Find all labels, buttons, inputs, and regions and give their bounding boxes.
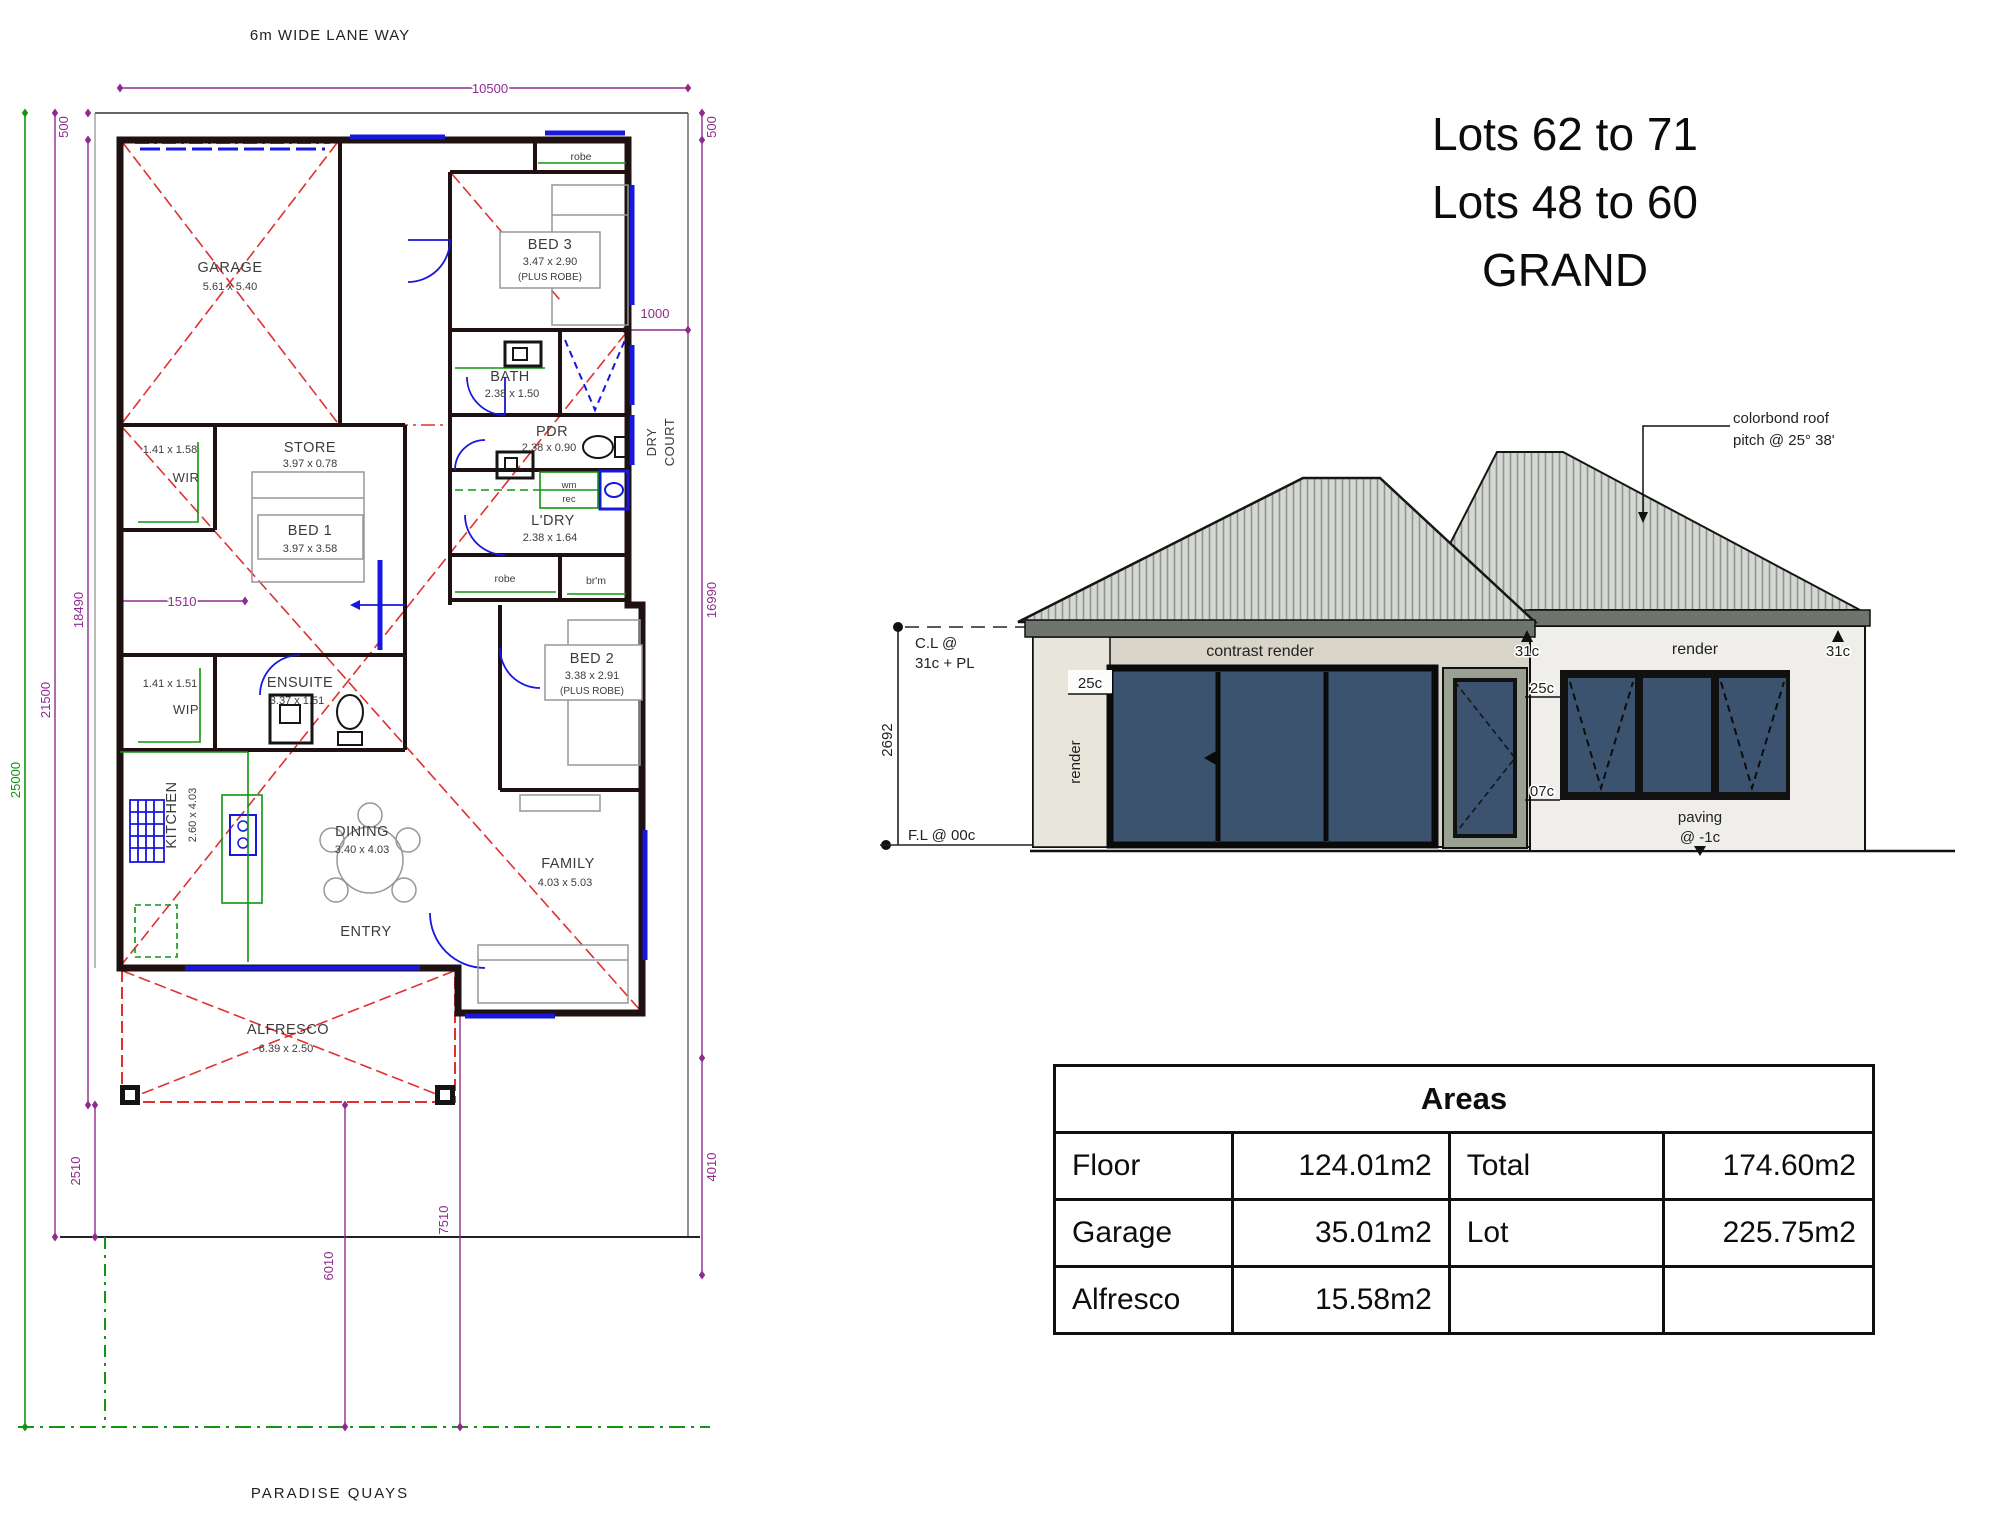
room-alfresco-size: 6.39 x 2.50: [259, 1043, 313, 1055]
lane-label: 6m WIDE LANE WAY: [250, 27, 410, 44]
room-dining: DINING: [335, 824, 389, 840]
right-window: [1560, 670, 1790, 800]
room-pdr: PDR: [536, 424, 568, 440]
marker-31-right: 31c: [1826, 643, 1851, 660]
room-store: STORE: [284, 440, 336, 456]
dim-depth3: 18490: [71, 592, 86, 628]
ceiling-label-1: C.L @: [915, 635, 957, 652]
room-alfresco: ALFRESCO: [247, 1022, 329, 1038]
roof-note-line1: colorbond roof: [1733, 410, 1830, 427]
room-pdr-size: 2.38 x 0.90: [522, 442, 576, 454]
roof-note-line2: pitch @ 25° 38': [1733, 432, 1835, 449]
dim-front-setback: 500: [56, 116, 71, 138]
page: { "title": { "line1": "Lots 62 to 71", "…: [0, 0, 2000, 1517]
label-dry-court-1: DRY: [644, 428, 659, 457]
label-rec: rec: [562, 494, 575, 505]
label-wm: wm: [561, 480, 577, 491]
room-bed2-note: (PLUS ROBE): [560, 686, 624, 697]
garage-door: [1110, 668, 1435, 845]
area-total-label: Total: [1449, 1133, 1663, 1200]
room-bed3-size: 3.47 x 2.90: [523, 256, 577, 268]
elevation-drawing: colorbond roof pitch @ 25° 38' C.L @ 31c…: [870, 390, 1980, 920]
marker-25-right: 25c: [1530, 680, 1555, 697]
ceiling-label-2: 31c + PL: [915, 655, 975, 672]
areas-table: Areas Floor 124.01m2 Total 174.60m2 Gara…: [1053, 1064, 1875, 1335]
areas-table-title: Areas: [1055, 1066, 1874, 1133]
area-floor-label: Floor: [1055, 1133, 1233, 1200]
area-empty-value: [1663, 1267, 1874, 1334]
table-row: Garage 35.01m2 Lot 225.75m2: [1055, 1200, 1874, 1267]
room-wir: WIR: [173, 470, 200, 485]
roof: [1018, 452, 1870, 637]
label-dry-court-2: COURT: [662, 418, 677, 466]
height-dim: 2692: [879, 723, 896, 756]
paving-label-2: @ -1c: [1680, 829, 1721, 846]
room-bath: BATH: [490, 369, 530, 385]
room-wir-size: 1.41 x 1.58: [143, 444, 197, 456]
room-ldry: L'DRY: [531, 513, 575, 529]
room-kitchen: KITCHEN: [164, 781, 180, 848]
room-store-size: 3.97 x 0.78: [283, 458, 337, 470]
area-lot-value: 225.75m2: [1663, 1200, 1874, 1267]
title-line-1: Lots 62 to 71: [1245, 100, 1885, 168]
roof-annotation: colorbond roof pitch @ 25° 38': [1638, 410, 1835, 523]
area-lot-label: Lot: [1449, 1200, 1663, 1267]
title-block: Lots 62 to 71 Lots 48 to 60 GRAND: [1245, 100, 1885, 304]
floor-plan-drawing: 6m WIDE LANE WAY PARADISE QUAYS 10500 25…: [0, 0, 760, 1517]
entry-door: [1443, 668, 1527, 848]
title-line-3: GRAND: [1245, 236, 1885, 304]
dim-house-depth: 16990: [704, 582, 719, 618]
dim-top: 10500: [472, 81, 508, 96]
room-ldry-size: 2.38 x 1.64: [523, 532, 577, 544]
dimension-lines: 10500 25000 21500 18490 500 1510 2510 50…: [8, 81, 719, 1432]
marker-31-left: 31c: [1515, 643, 1540, 660]
areas-table-header-row: Areas: [1055, 1066, 1874, 1133]
area-garage-label: Garage: [1055, 1200, 1233, 1267]
dim-rear2: 7510: [436, 1206, 451, 1235]
room-kitchen-size: 2.60 x 4.03: [187, 788, 199, 842]
table-row: Floor 124.01m2 Total 174.60m2: [1055, 1133, 1874, 1200]
area-garage-value: 35.01m2: [1232, 1200, 1449, 1267]
dim-rear3: 6010: [321, 1252, 336, 1281]
room-entry: ENTRY: [340, 924, 391, 940]
dim-lot-depth: 25000: [8, 762, 23, 798]
marker-07: 07c: [1530, 783, 1555, 800]
room-dining-size: 3.40 x 4.03: [335, 844, 389, 856]
pier-label: render: [1067, 740, 1084, 783]
room-family: FAMILY: [541, 856, 595, 872]
table-row: Alfresco 15.58m2: [1055, 1267, 1874, 1334]
area-alfresco-label: Alfresco: [1055, 1267, 1233, 1334]
dim-wir-offset: 1510: [168, 594, 197, 609]
room-bed2: BED 2: [570, 651, 614, 667]
room-ensuite: ENSUITE: [267, 675, 333, 691]
dim-right-setback: 500: [704, 116, 719, 138]
room-garage: GARAGE: [197, 260, 262, 276]
room-bed1: BED 1: [288, 523, 332, 539]
floor-level-label: F.L @ 00c: [908, 827, 976, 844]
label-broom: br'm: [586, 575, 606, 587]
area-total-value: 174.60m2: [1663, 1133, 1874, 1200]
room-bed1-size: 3.97 x 3.58: [283, 543, 337, 555]
wall-left-label: contrast render: [1206, 643, 1314, 660]
paving-label-1: paving: [1678, 809, 1722, 826]
room-bed3: BED 3: [528, 237, 572, 253]
dim-side-court: 1000: [641, 306, 670, 321]
room-family-size: 4.03 x 5.03: [538, 877, 592, 889]
dim-rear1: 4010: [704, 1153, 719, 1182]
room-garage-size: 5.61 x 5.40: [203, 281, 257, 293]
title-line-2: Lots 48 to 60: [1245, 168, 1885, 236]
room-ensuite-size: 3.37 x 1.51: [270, 695, 324, 707]
room-wip-size: 1.41 x 1.51: [143, 678, 197, 690]
room-bath-size: 2.38 x 1.50: [485, 388, 539, 400]
label-robe-top: robe: [570, 151, 591, 163]
area-floor-value: 124.01m2: [1232, 1133, 1449, 1200]
area-empty-label: [1449, 1267, 1663, 1334]
area-alfresco-value: 15.58m2: [1232, 1267, 1449, 1334]
dim-rear-setback: 2510: [68, 1157, 83, 1186]
room-bed2-size: 3.38 x 2.91: [565, 670, 619, 682]
label-robe-hall: robe: [494, 573, 515, 585]
room-bed3-note: (PLUS ROBE): [518, 272, 582, 283]
dim-depth2: 21500: [38, 682, 53, 718]
wall-right-label: render: [1672, 641, 1719, 658]
room-wip: WIP: [173, 702, 199, 717]
marker-25-left: 25c: [1078, 675, 1103, 692]
street-label: PARADISE QUAYS: [251, 1485, 409, 1502]
